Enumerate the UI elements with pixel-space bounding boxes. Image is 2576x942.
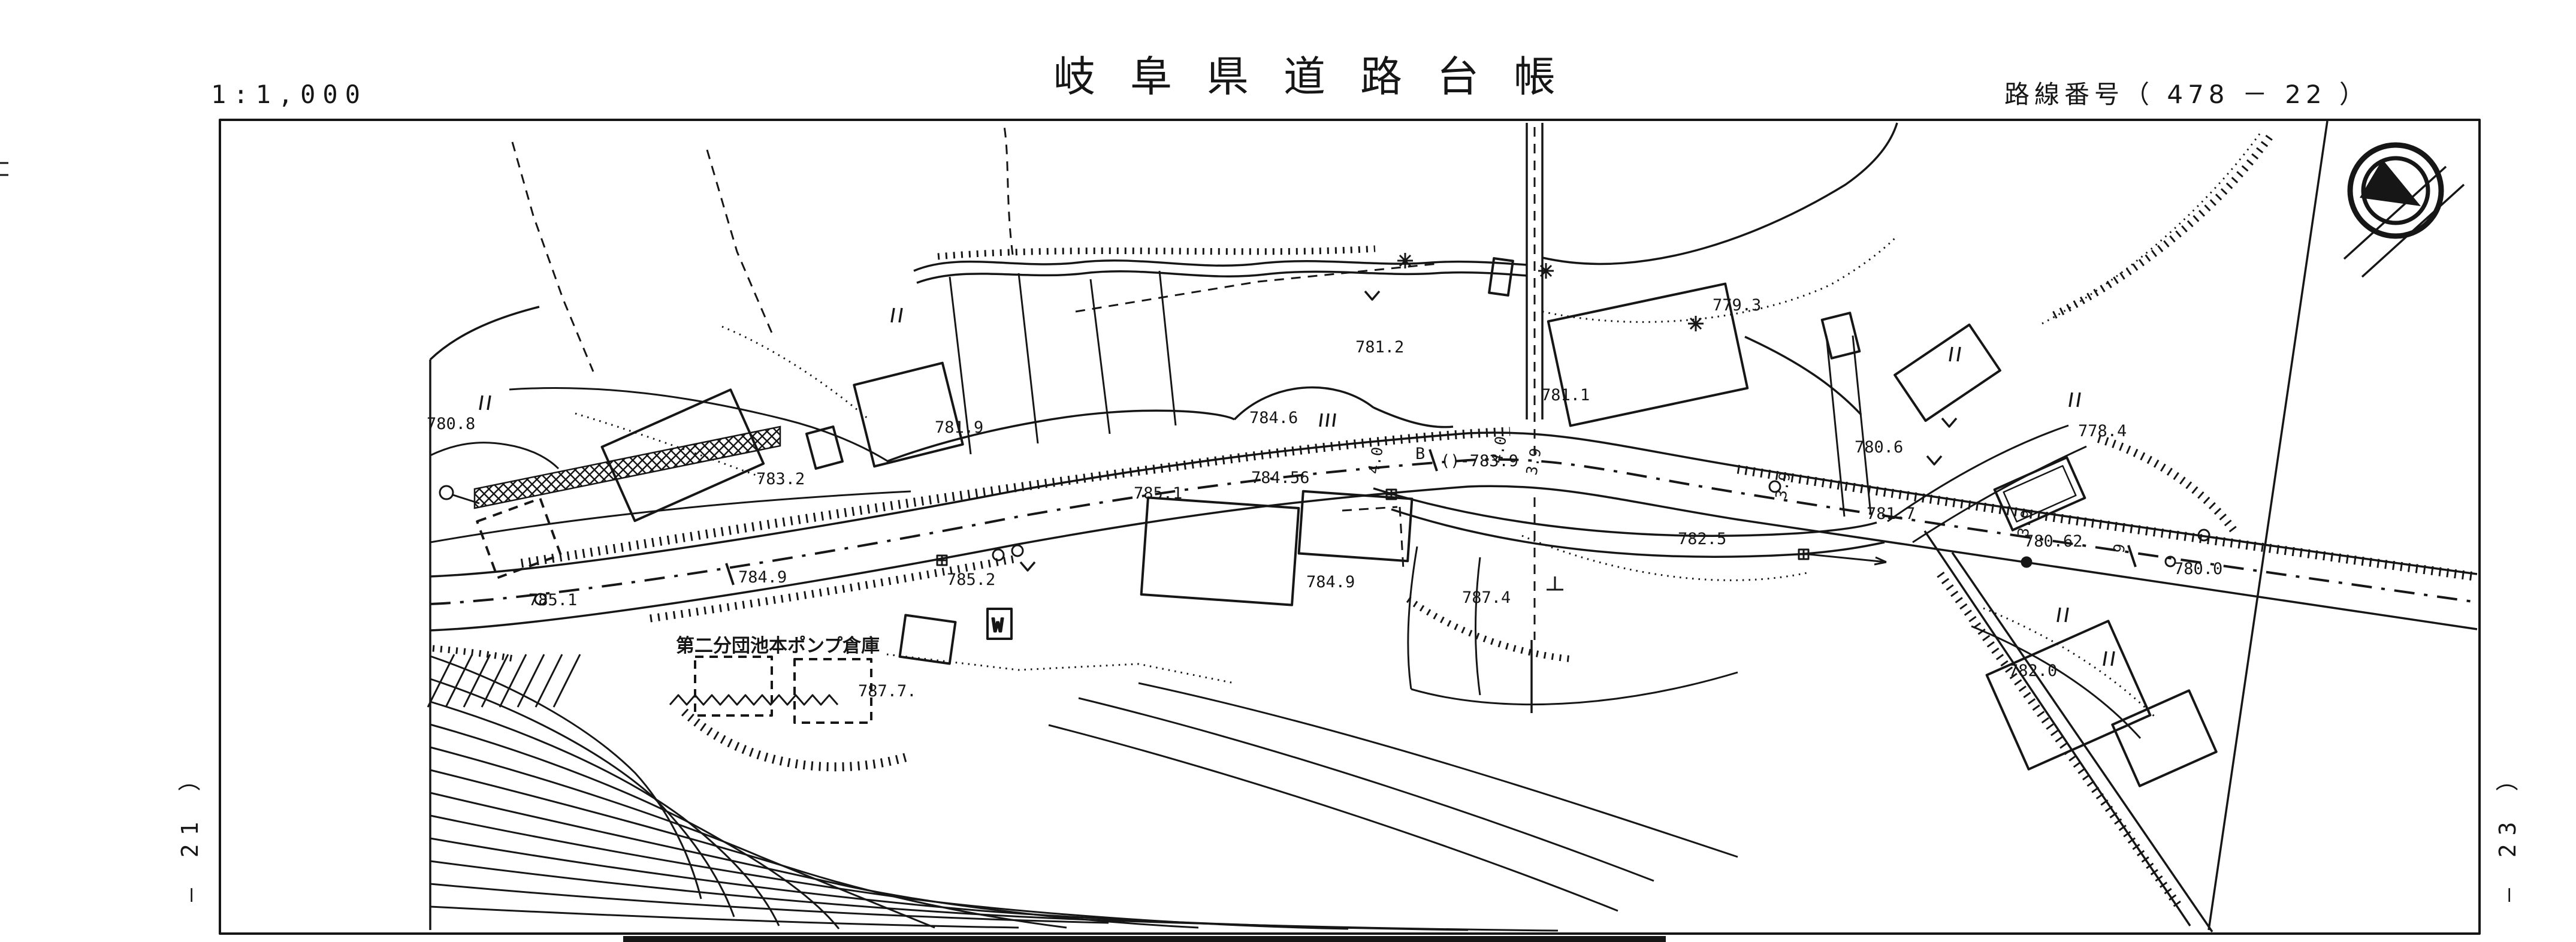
route-number-label: 路線番号（ 478 － 22 ） [2004, 80, 2369, 109]
building [1141, 497, 1299, 605]
sheet-neat-line [2209, 121, 2327, 930]
tee-mark [1547, 576, 1563, 590]
spot-elevation-label: 781.7 [1867, 505, 1915, 523]
facility-label: 第二分団池本ポンプ倉庫 [676, 635, 880, 657]
spot-elevation-label: 778.4 [2078, 422, 2127, 440]
spot-elevation-label: 785.1 [1134, 484, 1182, 503]
spot-elevation-label: 780.0 [2174, 560, 2222, 578]
building-double [1995, 457, 2085, 530]
spot-elevation-label: 780.6 [1855, 438, 1903, 457]
spot-elevation-label: 782.5 [1678, 530, 1726, 548]
road-width-label: 3.9 [1523, 447, 1544, 477]
spot-elevation-label: 785.2 [947, 570, 995, 589]
road-ledger-sheet: 1:1,000 岐阜県道路台帳 路線番号（ 478 － 22 ） — 21 ） … [0, 0, 2576, 942]
spot-elevation-label: 784.6 [1249, 409, 1298, 427]
hatch-slope [428, 654, 580, 707]
spot-elevation-label: 784.9 [738, 568, 787, 587]
adjacent-sheet-left: — 21 ） [177, 760, 203, 902]
stream-line [914, 261, 1527, 271]
spot-elevation-label: 781.9 [935, 418, 983, 437]
road-width-label: 4.0 [1364, 446, 1386, 476]
contour-lines [430, 656, 1738, 931]
spot-elevation-label: 784.9 [1306, 573, 1355, 591]
edge-marks [0, 163, 8, 175]
pole-markers [1397, 253, 1704, 331]
grass-marks [1020, 291, 1956, 570]
north-compass-icon [2350, 145, 2441, 236]
spot-elevation-label: 782.0 [2009, 662, 2057, 680]
spot-elevation-label: 780.8 [427, 415, 475, 433]
road-width-label: 9 [2110, 542, 2128, 554]
map-linework [428, 121, 2477, 932]
building [1299, 491, 1412, 561]
page-title: 岐阜県道路台帳 [1053, 52, 1590, 101]
spot-elevation-label: 787.4 [1462, 588, 1511, 607]
building-small [807, 427, 842, 469]
water-valve-symbol: W [987, 609, 1011, 639]
road-width-label: 3.9 [1772, 471, 1793, 501]
building-small [900, 615, 956, 663]
scale-label: 1:1,000 [211, 80, 367, 109]
buildings [477, 258, 2216, 786]
bottom-sheet-strip [623, 936, 1666, 942]
building [2112, 690, 2216, 786]
retaining-wall-band [475, 427, 780, 508]
adjacent-sheet-right: — 23 ） [2495, 760, 2521, 902]
spot-elevation-label: 780.62 [2024, 532, 2083, 551]
spot-elevation-label: 783.2 [756, 470, 805, 488]
slope-hachures [433, 137, 2475, 906]
building [854, 363, 962, 467]
spot-elevation-label: 785.1 [529, 591, 577, 609]
spot-elevation-label: 781.2 [1355, 338, 1404, 357]
spot-elevation-label: 781.1 [1541, 386, 1590, 404]
spot-elevation-label: 784.56 [1251, 469, 1310, 487]
header: 1:1,000 岐阜県道路台帳 路線番号（ 478 － 22 ） [211, 52, 2369, 109]
building [1895, 325, 2000, 421]
spot-elevation-label: 779.3 [1713, 296, 1761, 315]
building-dashed [695, 657, 772, 715]
sheet-frame [0, 120, 2480, 942]
benchmark-prefix: B [1415, 445, 1425, 463]
spot-elevation-label: 787.7. [858, 682, 917, 701]
water-valve-label: W [992, 615, 1004, 636]
